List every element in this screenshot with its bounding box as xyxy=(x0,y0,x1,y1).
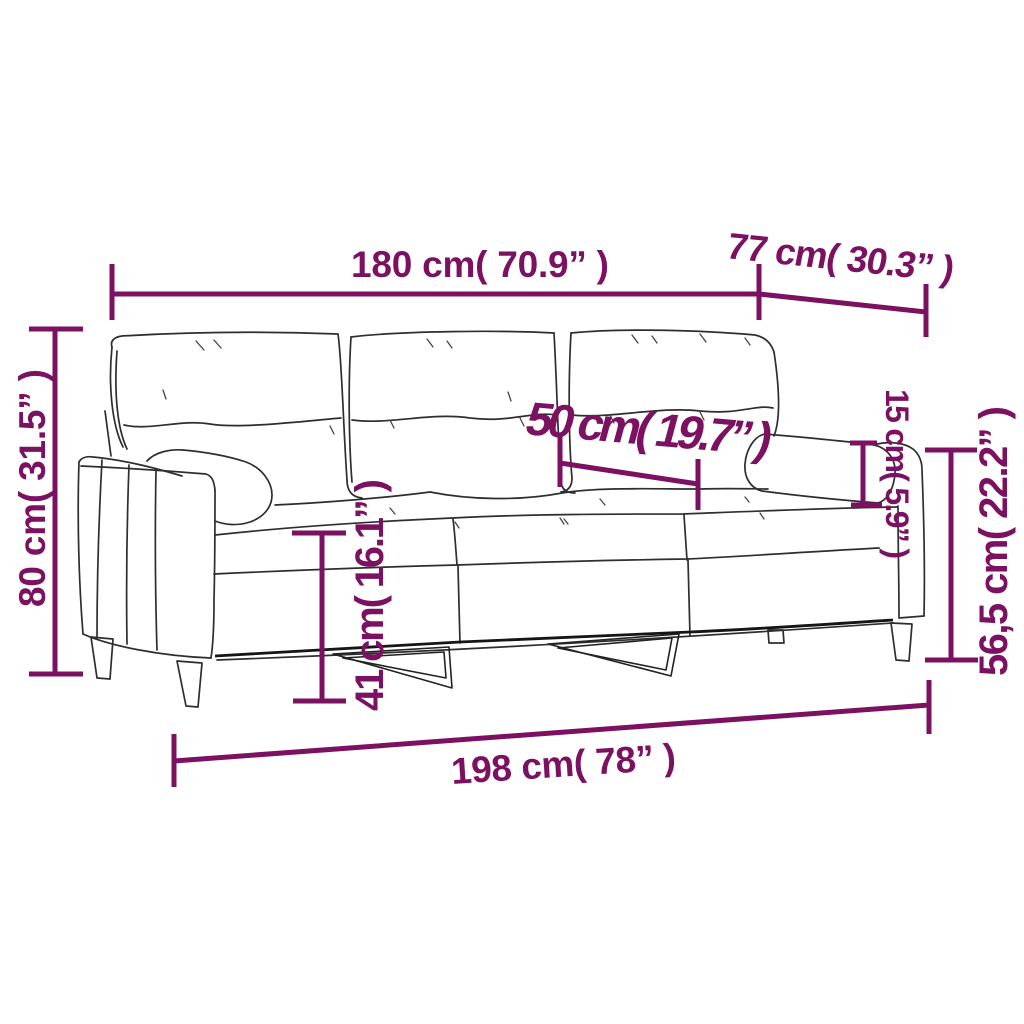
svg-text:41 cm( 16.1” ): 41 cm( 16.1” ) xyxy=(348,479,392,711)
svg-text:180 cm( 70.9” ): 180 cm( 70.9” ) xyxy=(351,244,609,285)
svg-text:56,5 cm( 22.2” ): 56,5 cm( 22.2” ) xyxy=(972,406,1016,676)
svg-text:15 cm( 5.9” ): 15 cm( 5.9” ) xyxy=(879,389,915,559)
svg-text:80 cm( 31.5” ): 80 cm( 31.5” ) xyxy=(12,369,53,607)
